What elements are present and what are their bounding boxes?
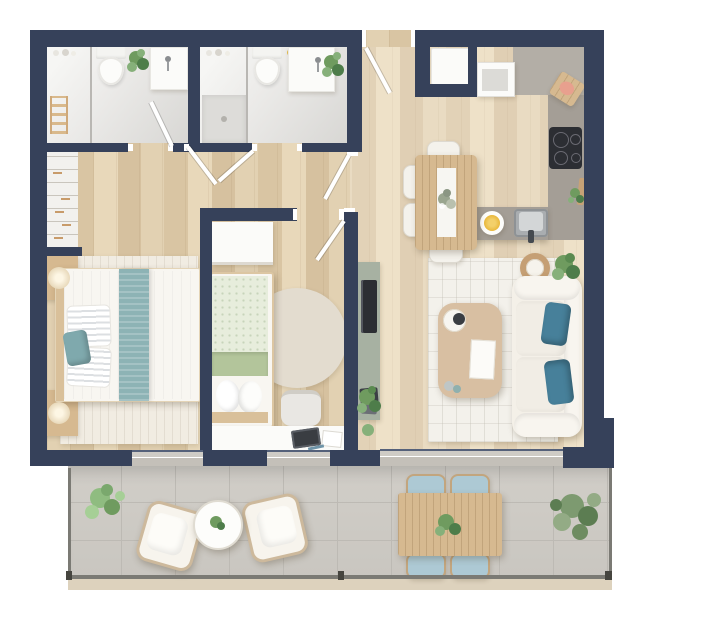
table-lamp <box>48 402 70 424</box>
appliance-interior <box>482 69 508 91</box>
green-blanket <box>212 352 268 376</box>
sliding-door-living <box>380 449 563 466</box>
wall-bottom-corner <box>563 447 614 468</box>
sofa-armrest-bottom <box>514 413 580 437</box>
lounge-cushion <box>145 511 190 557</box>
wall-bathrooms-a <box>47 143 128 152</box>
toiletry-bottle <box>225 51 230 56</box>
wall-living-divider <box>344 212 358 453</box>
single-bed <box>210 272 274 428</box>
terrace-railing-left <box>68 468 71 578</box>
door-jamb <box>347 152 358 156</box>
sliding-door-bedroom2 <box>267 450 330 466</box>
wall-bottom-b <box>203 450 267 466</box>
door-jamb <box>297 144 302 151</box>
teal-bed-runner <box>119 269 149 401</box>
toiletry-bottle <box>62 49 69 56</box>
appliance-cabinet <box>477 62 515 97</box>
burner <box>553 132 569 148</box>
burner <box>570 134 581 145</box>
wall-closet-stub <box>30 247 82 256</box>
vanity-sink <box>150 47 188 90</box>
sofa-backrest <box>564 280 579 433</box>
sink-basin <box>519 212 543 231</box>
side-table-tray <box>526 259 544 277</box>
patterned-duvet <box>212 276 268 352</box>
toiletry-bottle <box>53 50 59 56</box>
door-jamb <box>293 209 297 220</box>
burner <box>571 153 581 163</box>
food-on-board <box>557 79 577 98</box>
hanger <box>54 237 63 239</box>
faucet-handle <box>317 63 319 72</box>
coffee-cup <box>453 385 461 393</box>
door-jamb <box>168 144 173 151</box>
serving-bowl <box>480 211 504 235</box>
sofa <box>512 276 582 437</box>
hanger <box>53 172 62 174</box>
coffee-book <box>469 339 496 379</box>
table-runner <box>437 168 456 237</box>
desk-papers <box>321 430 343 448</box>
railing-post <box>338 571 344 580</box>
sofa-teal-pillow <box>543 359 574 406</box>
shower-drain <box>221 116 227 122</box>
lounge-cushion <box>255 504 299 549</box>
door-jamb <box>411 30 415 47</box>
wall-between-baths <box>188 47 200 143</box>
wall-left <box>30 47 47 466</box>
railing-post <box>66 571 72 580</box>
door-jamb <box>344 208 355 212</box>
table-lamp <box>48 267 70 289</box>
wall-bedroom2-top <box>212 208 297 221</box>
door-jamb <box>252 144 257 151</box>
door-jamb <box>184 144 189 151</box>
shower-tray <box>202 95 246 143</box>
bowl-food <box>484 215 500 231</box>
tv <box>361 280 377 333</box>
toiletry-bottle <box>71 51 76 56</box>
wall-top-right <box>415 30 604 47</box>
desk-chair <box>281 390 321 426</box>
dining-table <box>415 155 477 250</box>
kitchen-sink <box>514 209 548 237</box>
faucet <box>528 230 534 243</box>
wall-right <box>584 47 604 447</box>
vanity-sink <box>288 47 335 92</box>
shower-partition <box>90 47 92 143</box>
wall-hall-right <box>347 47 362 152</box>
open-wardrobe-rails <box>47 150 78 247</box>
fridge-tall-unit <box>431 48 470 85</box>
shower-glass <box>246 47 248 143</box>
faucet-handle <box>167 62 169 71</box>
hanger <box>61 198 70 200</box>
floor-plan <box>0 0 701 625</box>
coffee-bowl <box>453 313 465 325</box>
cooktop <box>549 127 582 169</box>
bed-pillow <box>237 380 264 414</box>
wall-entry-niche-v <box>415 47 430 97</box>
wall-top-left <box>30 30 362 47</box>
headboard <box>212 412 268 423</box>
wall-entry-niche-r <box>468 47 477 97</box>
coffee-table <box>438 303 502 398</box>
books-stack <box>361 401 378 414</box>
double-bed <box>55 268 200 402</box>
toiletry-bottle <box>215 49 222 56</box>
sofa-armrest-top <box>514 276 580 300</box>
door-jamb <box>362 30 366 47</box>
outdoor-dining-table <box>398 493 502 556</box>
wall-bedroom2-left <box>200 208 212 453</box>
hanger <box>55 211 64 213</box>
entrance-threshold <box>366 30 411 47</box>
desk <box>212 426 344 452</box>
wall-bottom-a <box>30 450 132 466</box>
burner <box>554 151 568 165</box>
towel-ladder <box>50 96 68 134</box>
hanger <box>62 224 71 226</box>
terrace-round-table <box>193 500 243 550</box>
door-jamb <box>339 209 344 220</box>
door-jamb <box>128 144 133 151</box>
wardrobe <box>212 222 273 265</box>
sliding-door-bedroom1 <box>132 450 203 466</box>
toiletry-bottle <box>206 50 212 56</box>
terrace-railing-right <box>609 468 612 578</box>
railing-post <box>605 571 612 580</box>
